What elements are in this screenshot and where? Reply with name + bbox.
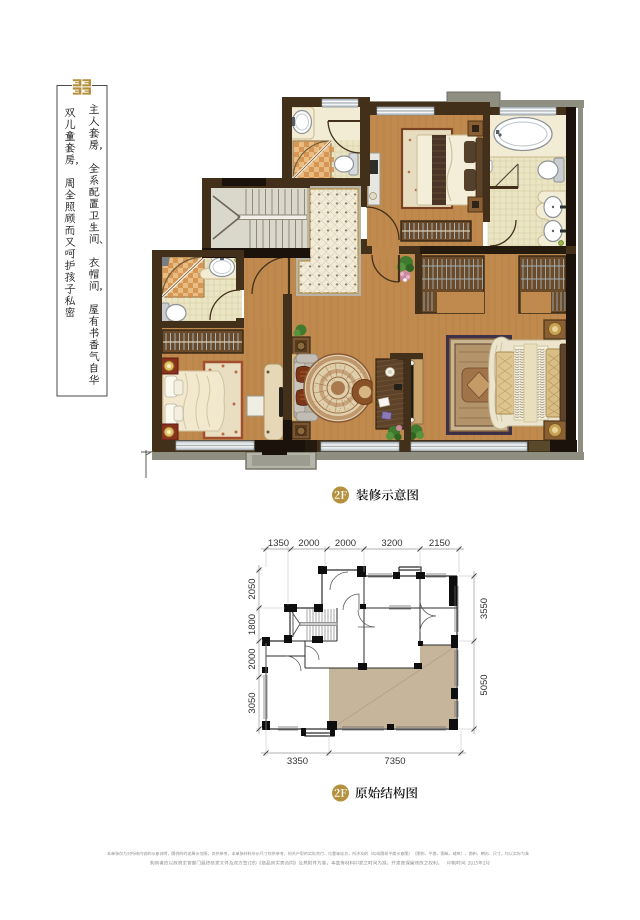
svg-text:2000: 2000	[247, 648, 258, 669]
svg-text:3350: 3350	[287, 756, 308, 767]
svg-text:5050: 5050	[479, 674, 490, 695]
svg-text:2000: 2000	[335, 538, 356, 549]
svg-text:3550: 3550	[479, 598, 490, 619]
svg-text:2050: 2050	[247, 578, 258, 599]
svg-text:1350: 1350	[268, 538, 289, 549]
svg-text:2150: 2150	[429, 538, 450, 549]
svg-text:3050: 3050	[247, 692, 258, 713]
svg-text:2000: 2000	[298, 538, 319, 549]
svg-text:7350: 7350	[384, 756, 405, 767]
svg-text:3200: 3200	[381, 538, 402, 549]
svg-text:1800: 1800	[247, 614, 258, 635]
